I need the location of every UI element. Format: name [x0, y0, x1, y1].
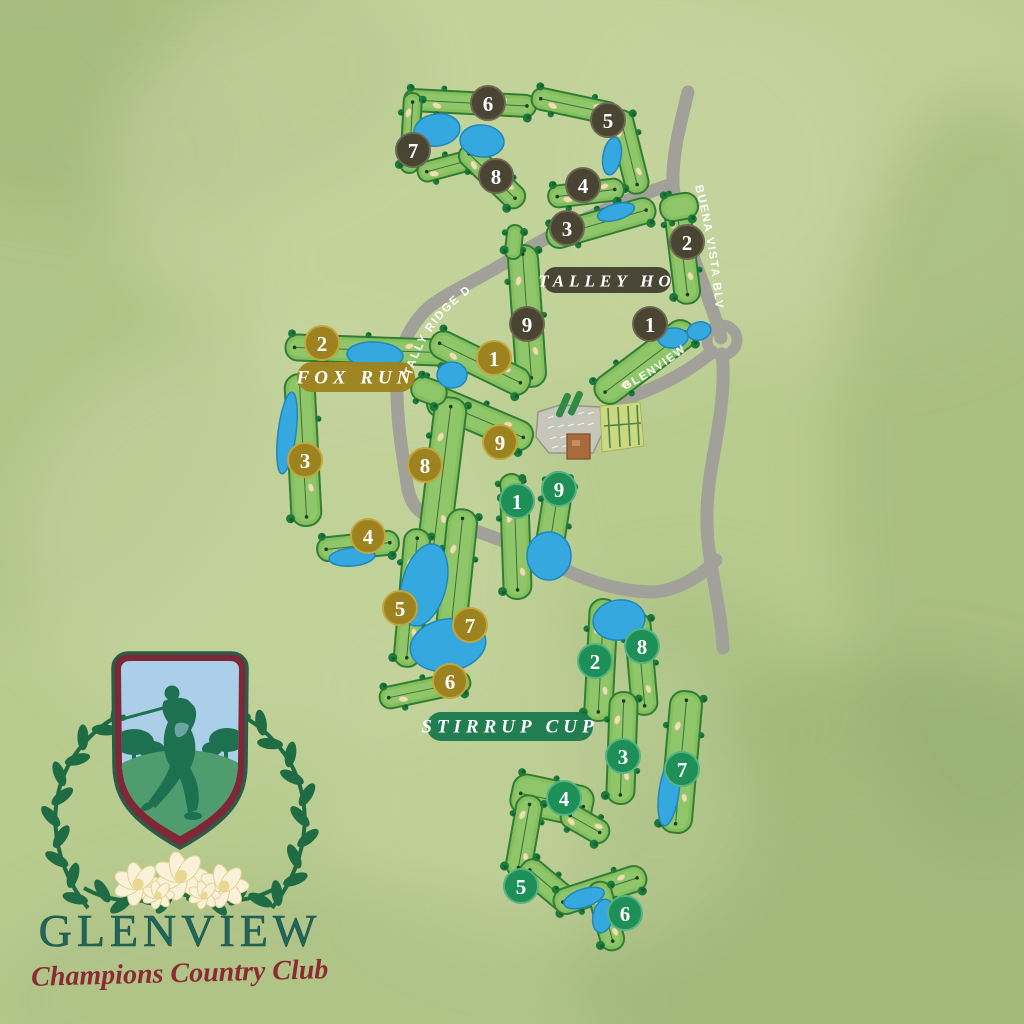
svg-text:3: 3	[618, 745, 629, 769]
hole-marker-stirrup-cup-1: 1	[500, 484, 534, 518]
hole-marker-talley-ho-3: 3	[550, 211, 584, 245]
hole-marker-stirrup-cup-5: 5	[504, 869, 538, 903]
hole-marker-talley-ho-9: 9	[510, 307, 544, 341]
svg-text:9: 9	[554, 478, 565, 502]
water-hazard	[437, 362, 467, 388]
water-hazard	[527, 532, 571, 580]
svg-text:2: 2	[590, 650, 601, 674]
svg-text:1: 1	[645, 313, 656, 337]
hole-marker-fox-run-9: 9	[483, 425, 517, 459]
hole-marker-fox-run-6: 6	[433, 664, 467, 698]
hole-marker-fox-run-7: 7	[453, 608, 487, 642]
hole-marker-stirrup-cup-9: 9	[542, 472, 576, 506]
hole-marker-talley-ho-7: 7	[396, 133, 430, 167]
svg-text:6: 6	[445, 670, 456, 694]
course-map-page: TALLEY HO FOX RUN STIRRUP CUP TALLY RIDG…	[0, 0, 1024, 1024]
svg-text:9: 9	[495, 431, 506, 455]
svg-text:1: 1	[489, 347, 500, 371]
hole-marker-stirrup-cup-6: 6	[608, 896, 642, 930]
svg-text:8: 8	[491, 165, 502, 189]
svg-text:8: 8	[637, 635, 648, 659]
hole-marker-fox-run-8: 8	[408, 448, 442, 482]
hole-marker-talley-ho-8: 8	[479, 159, 513, 193]
hole-marker-fox-run-5: 5	[383, 591, 417, 625]
course-label-text: STIRRUP CUP	[421, 717, 598, 738]
course-label-text: FOX RUN	[296, 368, 416, 389]
svg-text:4: 4	[559, 787, 570, 811]
course-label-text: TALLEY HO	[538, 272, 675, 291]
hole-marker-stirrup-cup-2: 2	[578, 644, 612, 678]
svg-text:4: 4	[578, 174, 589, 198]
clubhouse-building	[567, 434, 590, 459]
course-label-talley-ho: TALLEY HO	[538, 267, 675, 293]
hole-marker-stirrup-cup-4: 4	[547, 781, 581, 815]
course-label-stirrup-cup: STIRRUP CUP	[421, 712, 598, 741]
hole-marker-fox-run-1: 1	[477, 341, 511, 375]
svg-text:4: 4	[363, 525, 374, 549]
svg-text:3: 3	[300, 449, 311, 473]
svg-text:2: 2	[317, 332, 328, 356]
hole-marker-talley-ho-4: 4	[566, 168, 600, 202]
svg-text:1: 1	[512, 490, 523, 514]
club-name: GLENVIEW	[39, 905, 322, 956]
hole-marker-talley-ho-6: 6	[471, 86, 505, 120]
svg-text:7: 7	[677, 758, 688, 782]
svg-text:5: 5	[516, 875, 527, 899]
hole-marker-stirrup-cup-3: 3	[606, 739, 640, 773]
hole-marker-fox-run-4: 4	[351, 519, 385, 553]
svg-text:9: 9	[522, 313, 533, 337]
svg-text:2: 2	[682, 231, 693, 255]
svg-text:5: 5	[395, 597, 406, 621]
hole-marker-stirrup-cup-7: 7	[665, 752, 699, 786]
course-label-fox-run: FOX RUN	[296, 362, 416, 392]
hole-marker-stirrup-cup-8: 8	[625, 629, 659, 663]
hole-marker-fox-run-3: 3	[288, 443, 322, 477]
svg-text:6: 6	[483, 92, 494, 116]
hole-marker-fox-run-2: 2	[305, 326, 339, 360]
svg-text:5: 5	[603, 109, 614, 133]
svg-text:3: 3	[562, 217, 573, 241]
svg-text:7: 7	[408, 139, 419, 163]
hole-marker-talley-ho-5: 5	[591, 103, 625, 137]
hole-marker-talley-ho-2: 2	[670, 225, 704, 259]
svg-text:7: 7	[465, 614, 476, 638]
map-canvas: TALLEY HO FOX RUN STIRRUP CUP TALLY RIDG…	[0, 0, 1024, 1024]
hole-marker-talley-ho-1: 1	[633, 307, 667, 341]
svg-text:8: 8	[420, 454, 431, 478]
svg-text:6: 6	[620, 902, 631, 926]
